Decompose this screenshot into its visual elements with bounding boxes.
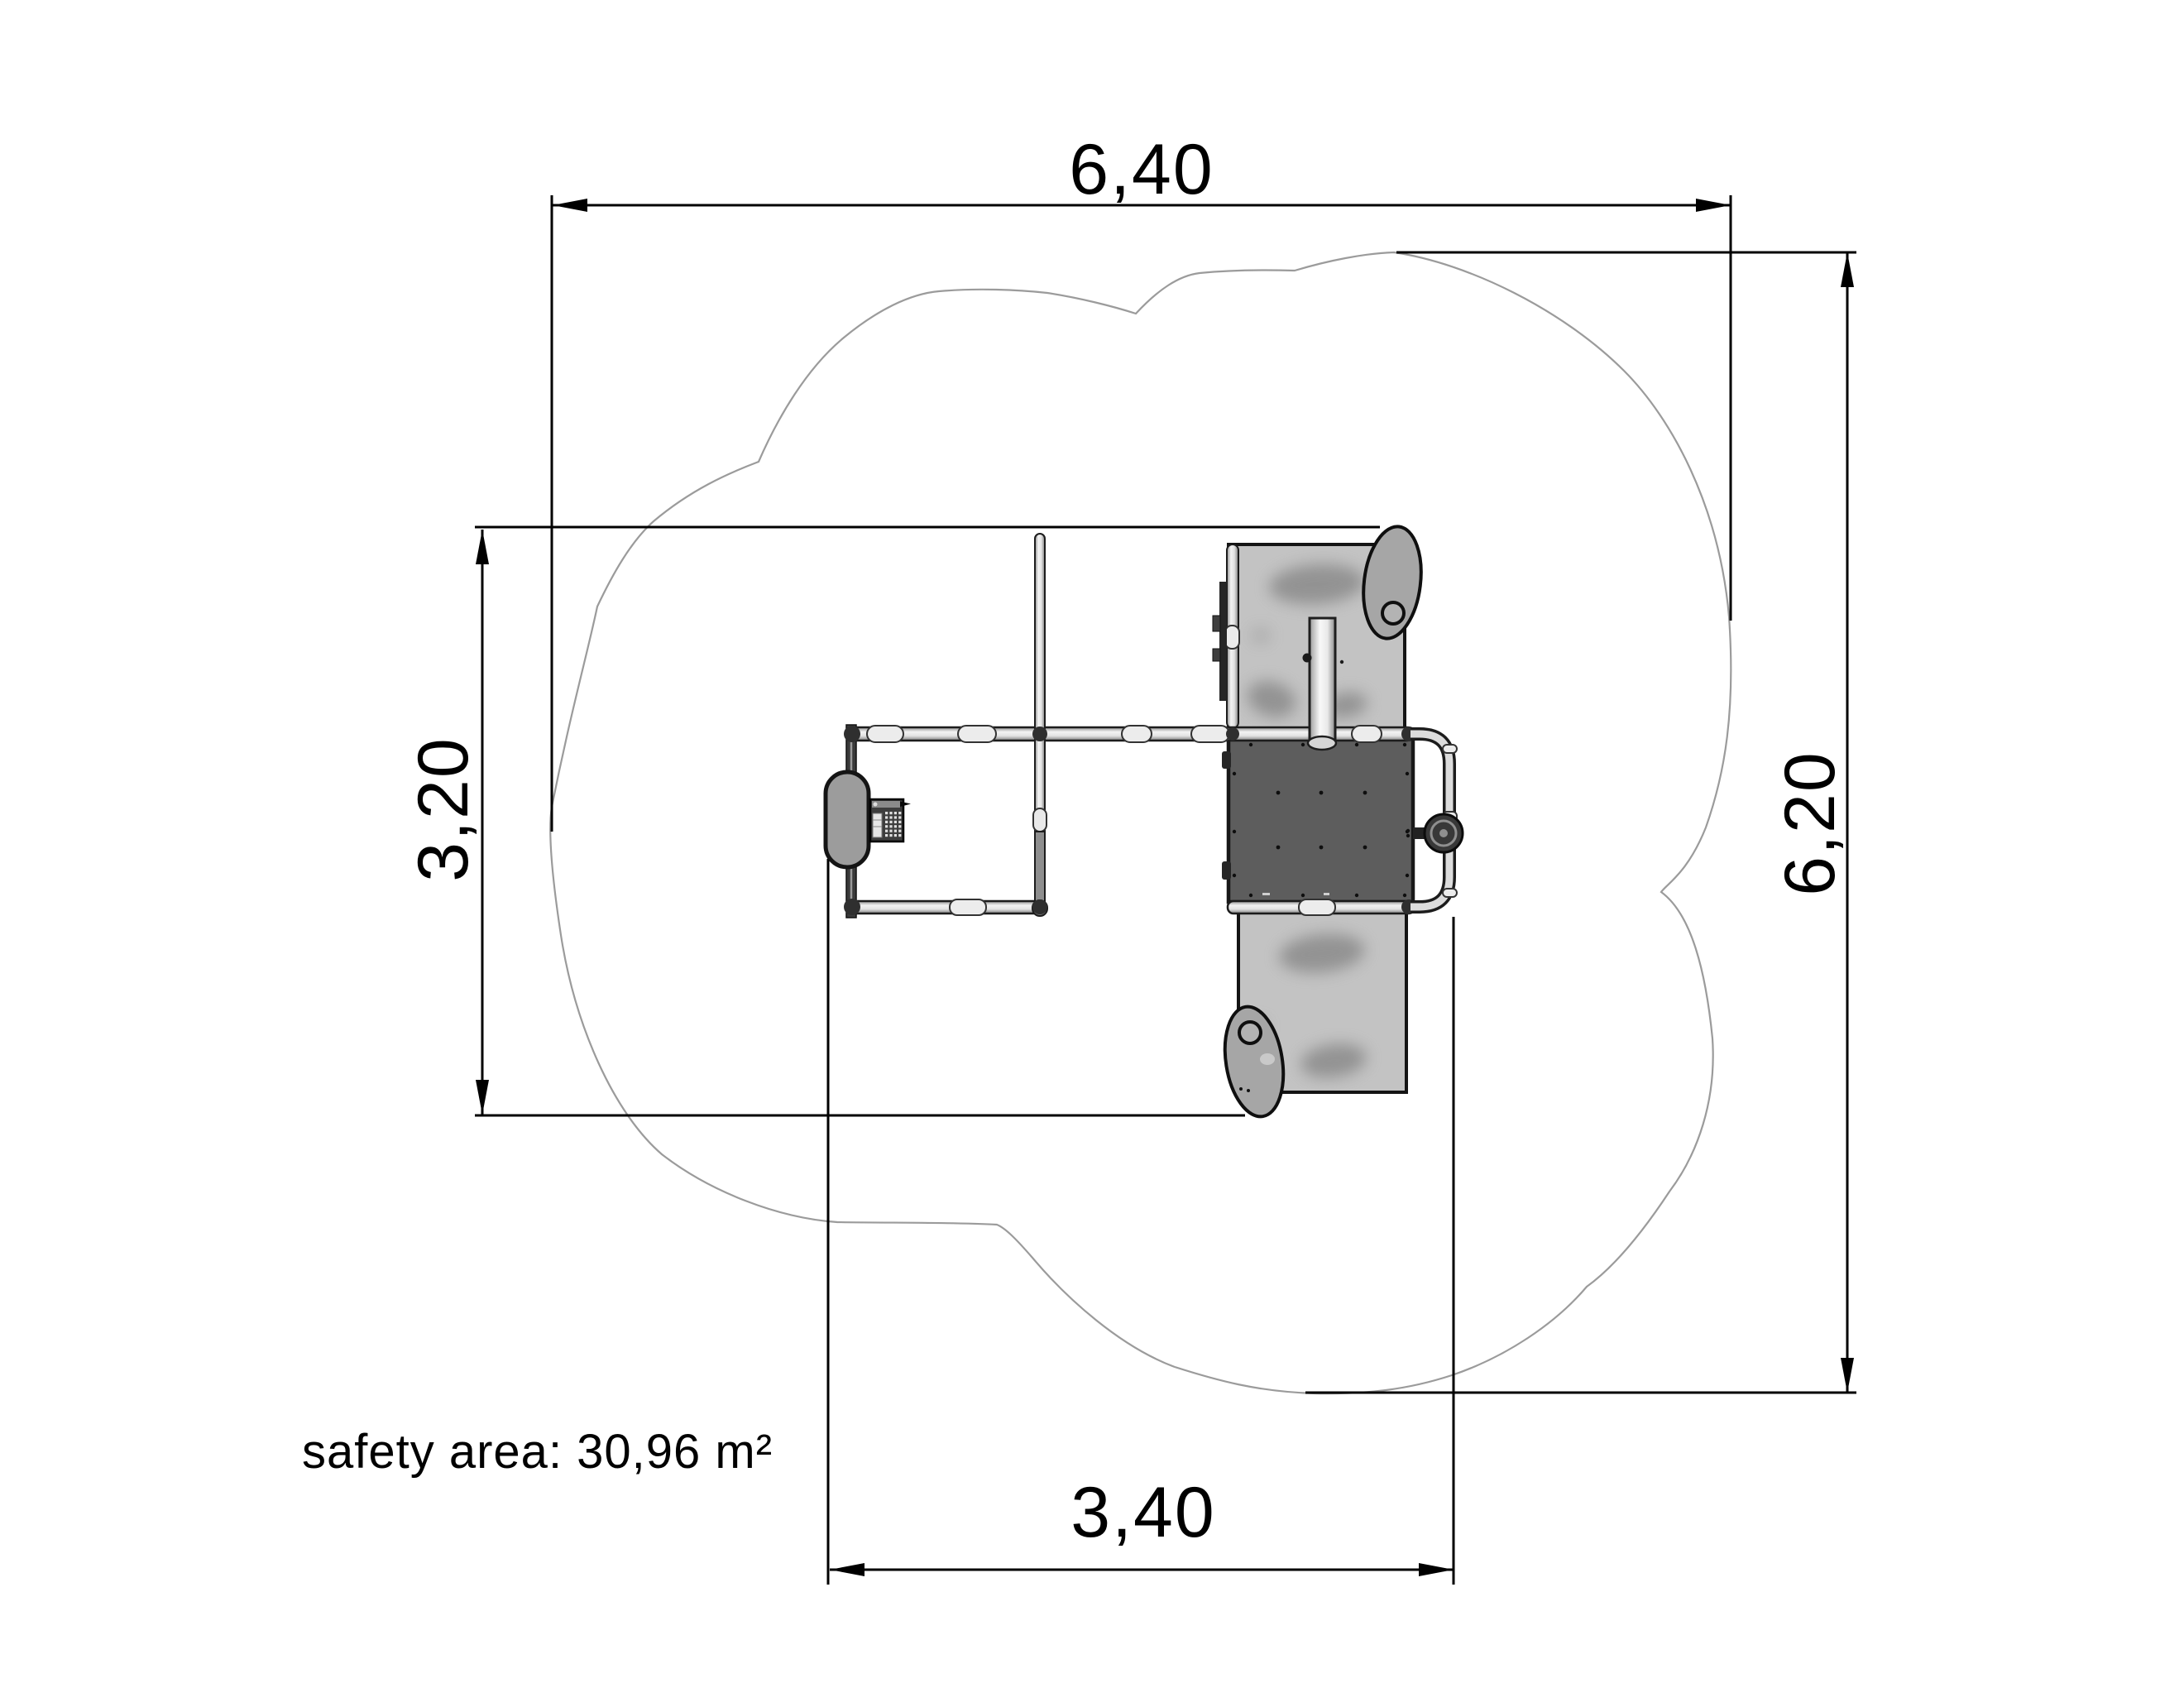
egg-hole xyxy=(1239,1022,1261,1043)
dim-arrow-left xyxy=(553,199,587,212)
dim-label-top: 6,40 xyxy=(1069,134,1214,205)
dim-arrow-top xyxy=(1841,252,1854,287)
panel-pointer xyxy=(900,802,911,808)
dim-arrow-bottom xyxy=(476,1080,489,1115)
wall-hinge-tab xyxy=(1213,616,1220,631)
wall-hinge-tab xyxy=(1213,649,1220,661)
egg-hole xyxy=(1382,602,1404,624)
pole-knob xyxy=(1303,654,1312,663)
panel-knob xyxy=(874,803,878,807)
side-wall-panel xyxy=(1219,582,1227,701)
safety-area-outline xyxy=(550,252,1731,1393)
dim-arrow-bottom xyxy=(1841,1358,1854,1393)
dim-arrow-left xyxy=(830,1563,864,1576)
dim-label-bottom: 3,40 xyxy=(1070,1477,1215,1548)
divider-wall-post xyxy=(1032,534,1047,916)
dim-arrow-top xyxy=(476,530,489,564)
platform-hinge xyxy=(1222,751,1231,769)
drawing-canvas: 6,40 6,20 3,20 3,40 safety area: 30,96 m… xyxy=(0,0,2184,1688)
dim-label-right: 6,20 xyxy=(1774,750,1846,895)
game-panel xyxy=(870,799,911,842)
bottom-rail-left xyxy=(850,901,1046,914)
safety-area-label: safety area: 30,96 m² xyxy=(302,1428,773,1476)
playground-equipment xyxy=(826,523,1463,1120)
seat xyxy=(826,772,869,867)
balance-egg-top xyxy=(1358,523,1427,641)
dim-arrow-right xyxy=(1696,199,1731,212)
dim-label-left: 3,20 xyxy=(408,736,479,881)
ramp-pipe-sleeve xyxy=(1225,626,1239,649)
panel-display xyxy=(873,813,882,837)
dim-arrow-right xyxy=(1419,1563,1454,1576)
activity-platform-dark xyxy=(1222,738,1413,902)
platform-hinge xyxy=(1222,861,1231,880)
